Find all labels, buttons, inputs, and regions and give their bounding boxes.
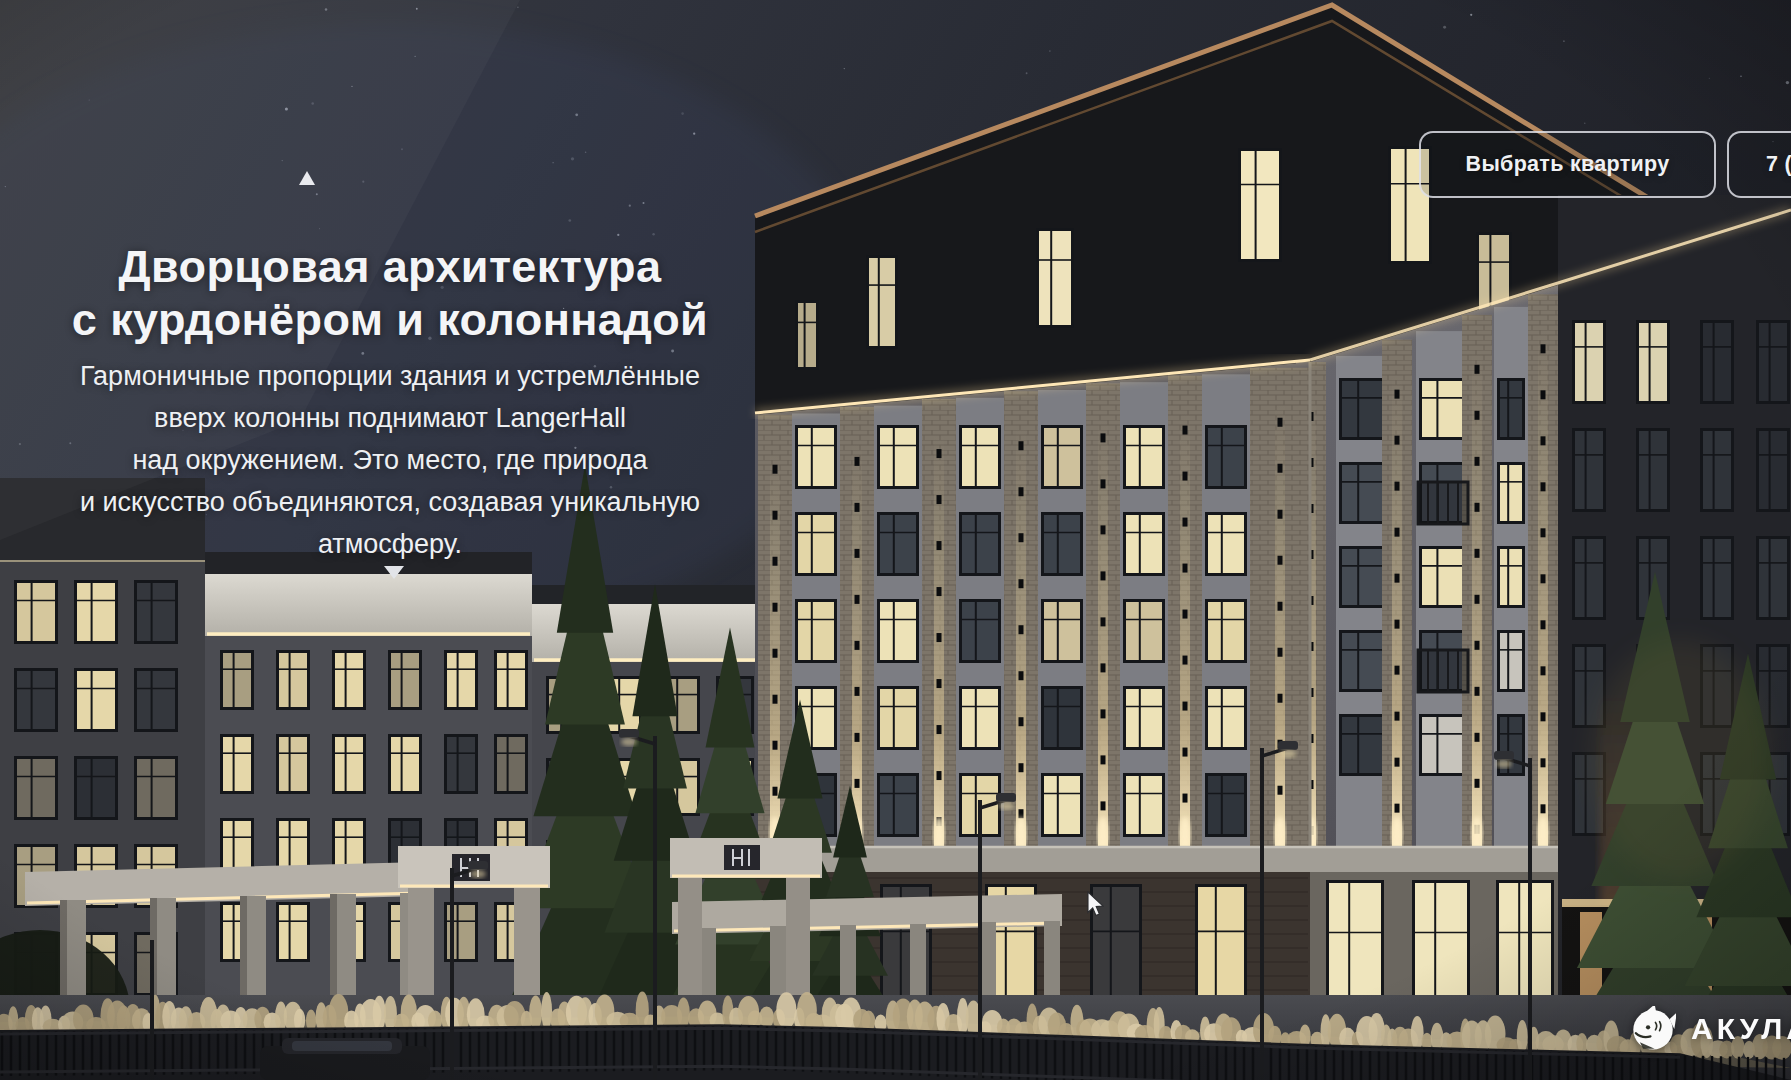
body-line: над окружением. Это место, где природа bbox=[25, 439, 755, 481]
developer-logo: АКУЛА bbox=[1630, 1006, 1791, 1052]
hero-section: Дворцовая архитектура с курдонёром и кол… bbox=[0, 0, 1791, 1080]
mouse-cursor-icon bbox=[1087, 891, 1104, 917]
headline-line: с курдонёром и колоннадой bbox=[25, 293, 755, 346]
developer-logo-text: АКУЛА bbox=[1691, 1012, 1791, 1046]
body-line: и искусство объединяются, создавая уника… bbox=[25, 481, 755, 523]
page-title: Дворцовая архитектура с курдонёром и кол… bbox=[25, 240, 755, 346]
choose-apartment-button[interactable]: Выбрать квартиру bbox=[1419, 131, 1716, 198]
body-line: Гармоничные пропорции здания и устремлён… bbox=[25, 355, 755, 397]
hero-description: Гармоничные пропорции здания и устремлён… bbox=[25, 355, 755, 565]
shark-logo-icon bbox=[1630, 1006, 1676, 1052]
headline-line: Дворцовая архитектура bbox=[25, 240, 755, 293]
arrow-down-icon[interactable] bbox=[384, 566, 404, 579]
body-line: вверх колонны поднимают LangerHall bbox=[25, 397, 755, 439]
hero-text-block: Дворцовая архитектура с курдонёром и кол… bbox=[25, 240, 755, 565]
phone-number-button[interactable]: 7 ( bbox=[1727, 131, 1791, 198]
body-line: атмосферу. bbox=[25, 523, 755, 565]
arrow-up-icon[interactable] bbox=[299, 171, 315, 185]
